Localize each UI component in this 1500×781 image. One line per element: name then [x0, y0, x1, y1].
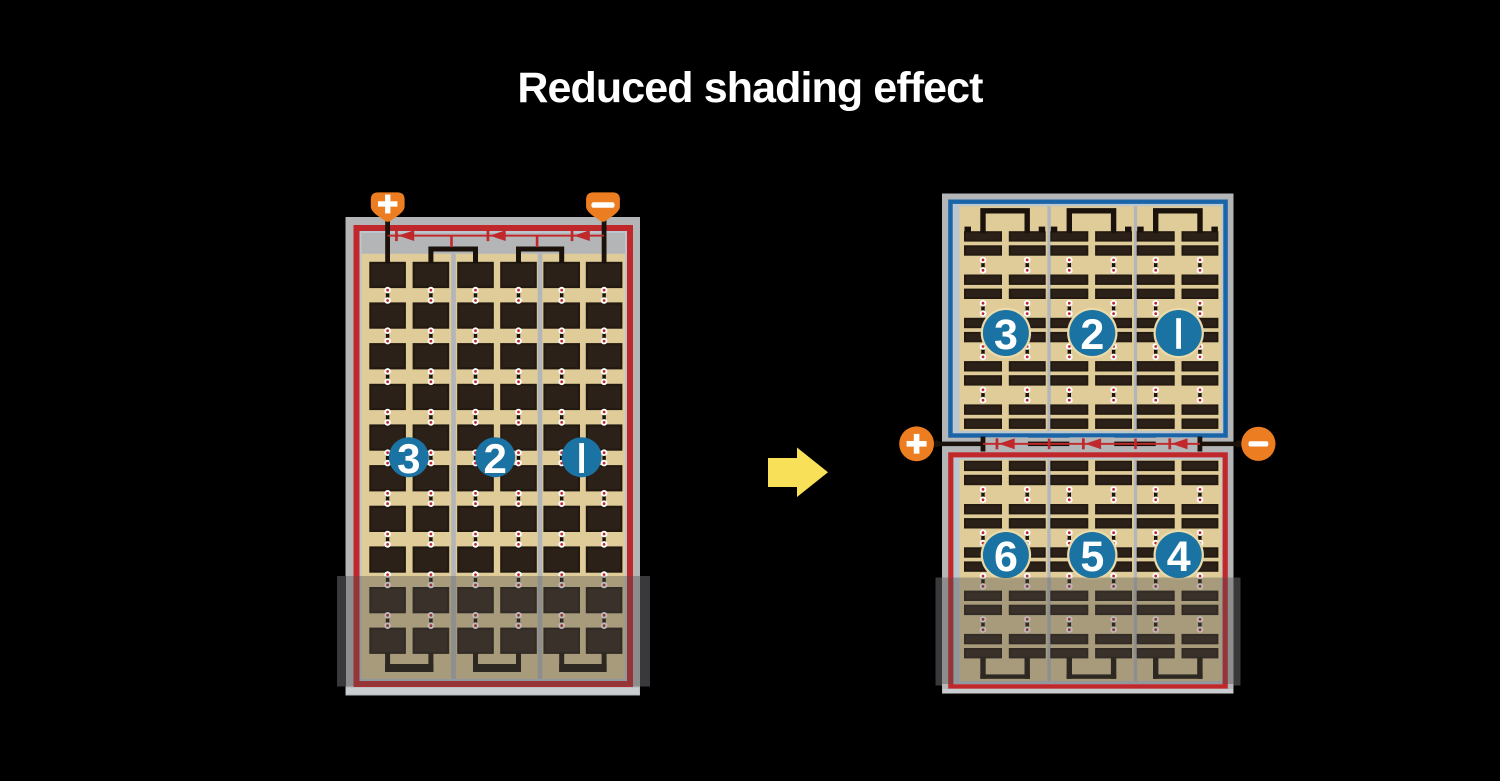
svg-text:3: 3 [397, 435, 420, 482]
svg-text:6: 6 [994, 533, 1018, 581]
svg-text:2: 2 [484, 435, 507, 482]
svg-text:3: 3 [994, 311, 1018, 359]
svg-text:2: 2 [1080, 311, 1104, 359]
svg-text:5: 5 [1080, 533, 1104, 581]
svg-text:Reduced shading effect: Reduced shading effect [517, 64, 983, 112]
svg-text:4: 4 [1167, 533, 1191, 581]
